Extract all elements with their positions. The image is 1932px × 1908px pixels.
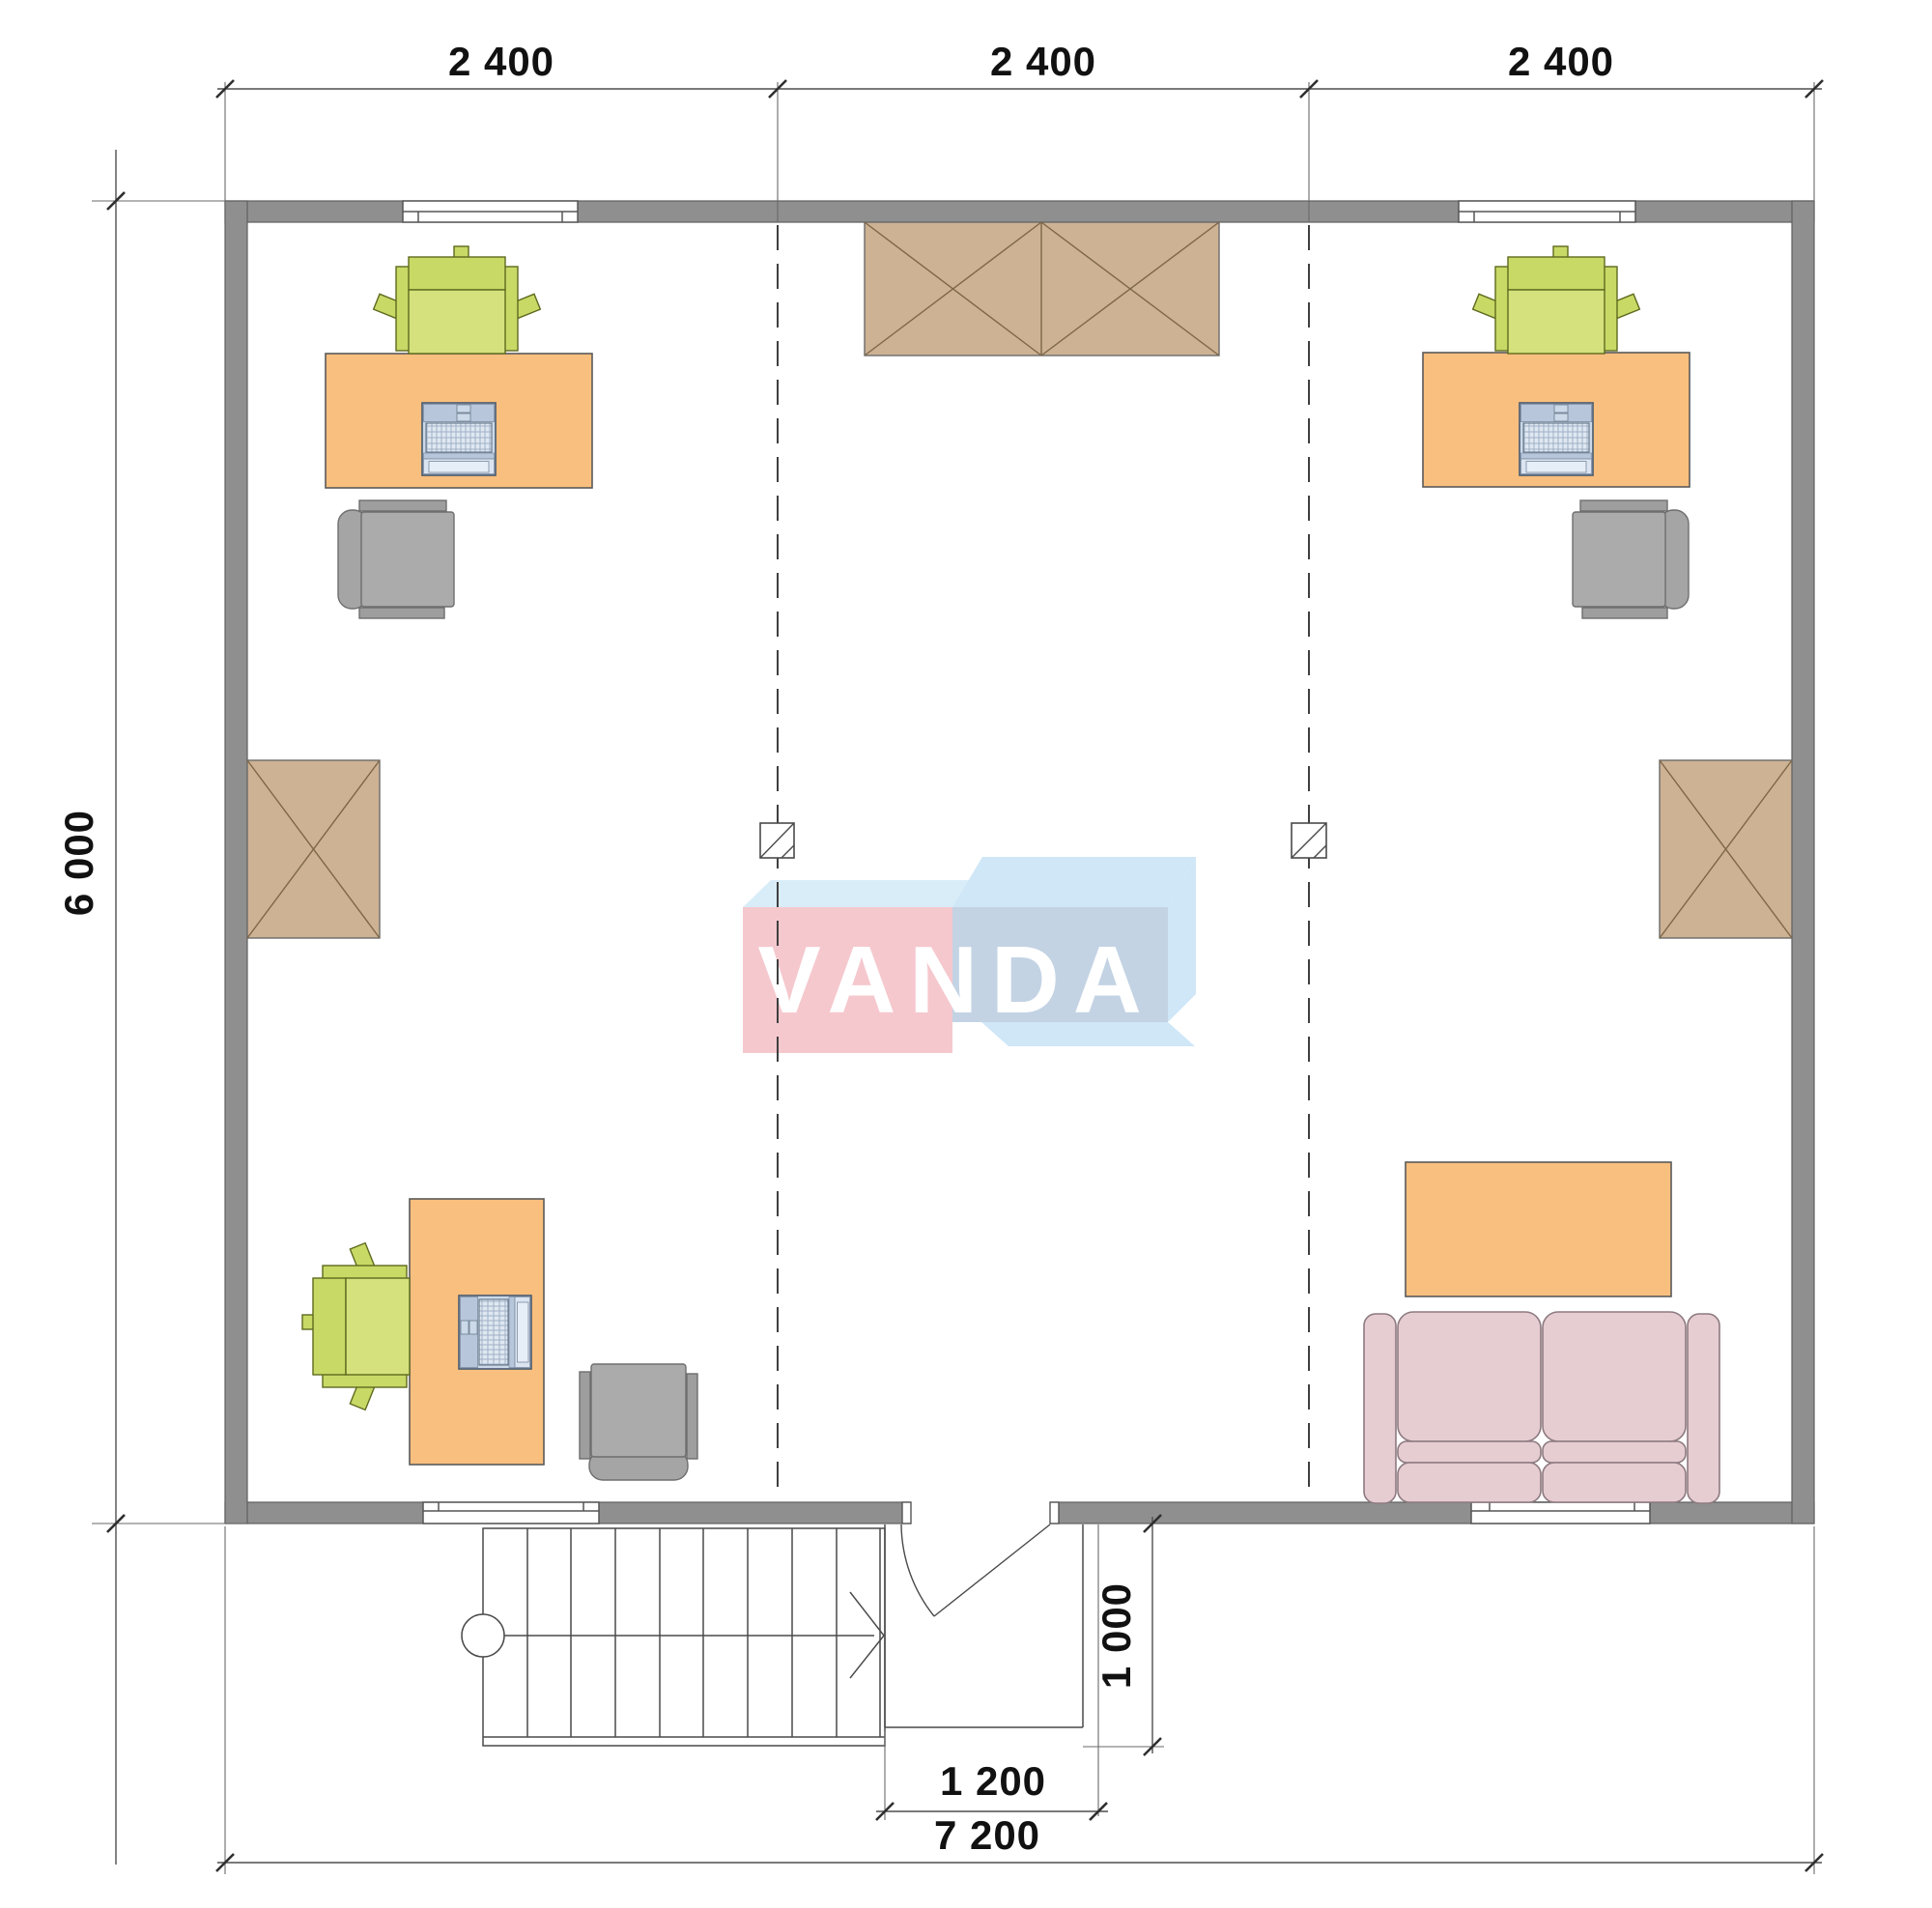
task-chair-top-right [1473, 246, 1640, 354]
door-jamb-left [902, 1502, 911, 1524]
floor-plan-canvas: VANDA [0, 0, 1932, 1908]
door-swing-arc [901, 1524, 934, 1616]
window-top-right [1459, 201, 1635, 222]
office-chair-top-right [1573, 500, 1689, 618]
logo-cube-blue-top [952, 857, 1196, 907]
door-jamb-right [1050, 1502, 1059, 1524]
stairs [462, 1528, 885, 1746]
dimension-top: 2 400 2 400 2 400 [216, 39, 1823, 222]
coffee-table [1406, 1162, 1671, 1296]
sofa-armrest-right [1688, 1314, 1719, 1503]
laptop-icon [1520, 403, 1593, 475]
dim-label-entry-depth: 1 000 [1094, 1582, 1139, 1689]
cabinet-left-wall [247, 760, 380, 938]
dim-label-bay-1: 2 400 [448, 39, 554, 84]
column-symbol-right [1292, 823, 1326, 858]
task-chair-bottom-left [302, 1243, 410, 1410]
laptop-icon [422, 403, 496, 475]
column-symbol-left [760, 823, 794, 858]
sofa-seat [1543, 1441, 1686, 1463]
window-top-left [403, 201, 578, 222]
sofa-seat-front [1543, 1463, 1686, 1502]
office-chair-bottom-left [580, 1364, 697, 1480]
window-bottom-left [423, 1502, 599, 1524]
sofa-back-cushion [1398, 1312, 1541, 1441]
dim-label-entry-width: 1 200 [940, 1758, 1046, 1804]
sofa-seat [1398, 1441, 1541, 1463]
wall-left [225, 201, 247, 1524]
cabinet-right-wall [1660, 760, 1792, 938]
floor-plan-page: VANDA [0, 0, 1932, 1908]
vanda-watermark-logo: VANDA [743, 857, 1196, 1053]
dim-label-total-width: 7 200 [934, 1812, 1040, 1858]
window-bottom-right [1471, 1502, 1650, 1524]
sofa [1364, 1312, 1719, 1503]
dim-label-bay-3: 2 400 [1508, 39, 1614, 84]
logo-wordmark: VANDA [757, 926, 1154, 1033]
dim-label-depth: 6 000 [56, 810, 101, 916]
office-chair-top-left [338, 500, 454, 618]
sofa-back-cushion [1543, 1312, 1686, 1441]
entrance-door [901, 1500, 1059, 1616]
stairs-newel-circle [462, 1614, 504, 1657]
wall-right [1792, 201, 1814, 1524]
dimension-bottom: 1 200 1 000 7 200 [216, 1515, 1823, 1874]
dim-label-bay-2: 2 400 [990, 39, 1096, 84]
laptop-icon [459, 1296, 531, 1369]
door-leaf [934, 1524, 1050, 1616]
cabinet-top-center [865, 222, 1219, 356]
task-chair-top-left [374, 246, 541, 354]
sofa-armrest-left [1364, 1314, 1396, 1503]
sofa-seat-front [1398, 1463, 1541, 1502]
dimension-left: 6 000 [56, 150, 247, 1865]
